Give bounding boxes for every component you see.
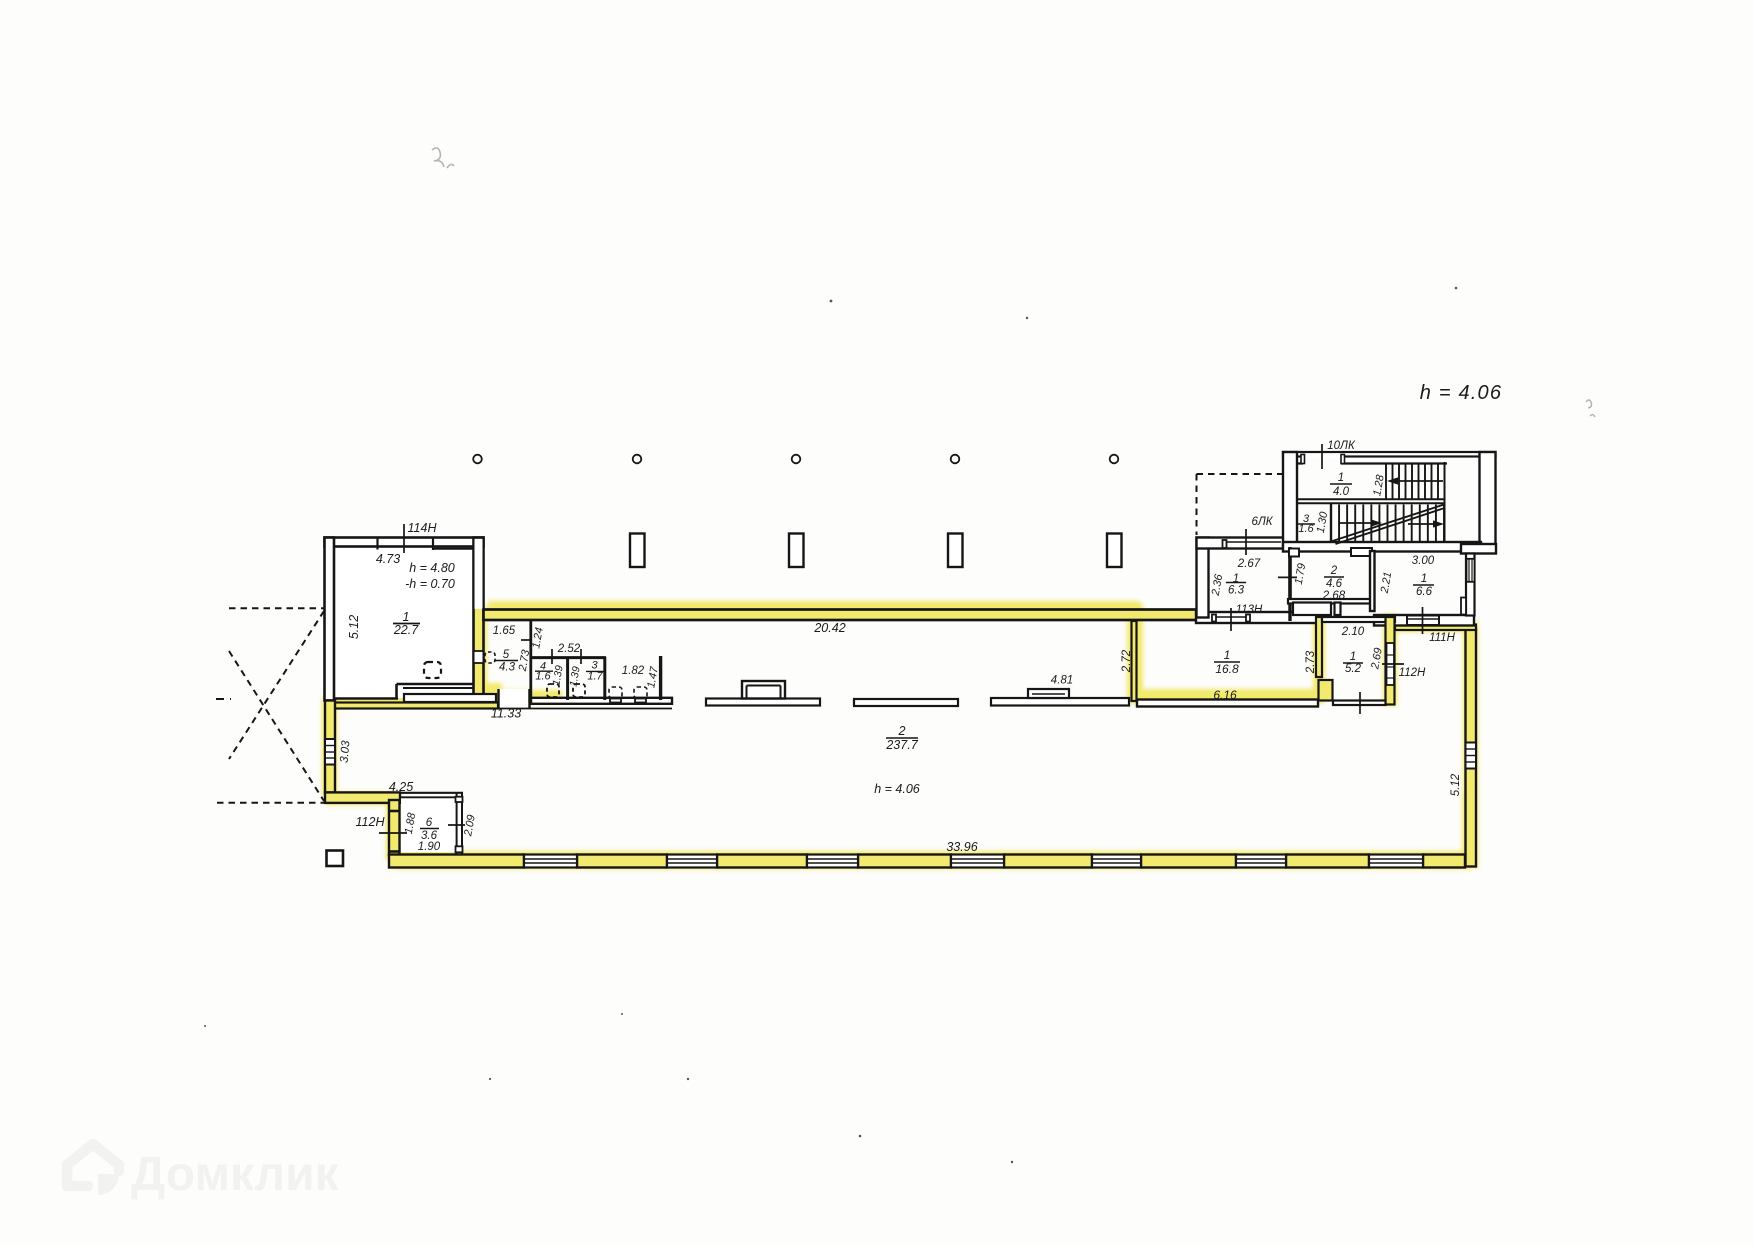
svg-text:114H: 114H <box>408 521 438 535</box>
svg-text:h = 4.06: h = 4.06 <box>1420 382 1502 404</box>
svg-text:1.6: 1.6 <box>535 671 551 683</box>
svg-text:4.73: 4.73 <box>376 552 400 566</box>
svg-text:6.16: 6.16 <box>1213 688 1237 702</box>
svg-text:1: 1 <box>1224 648 1231 662</box>
svg-text:3.03: 3.03 <box>339 739 353 763</box>
svg-text:-h = 0.70: -h = 0.70 <box>405 577 455 591</box>
svg-text:6ЛК: 6ЛК <box>1251 516 1273 528</box>
svg-text:6.6: 6.6 <box>1416 586 1433 598</box>
svg-text:6: 6 <box>426 817 433 829</box>
svg-text:2.73: 2.73 <box>1305 650 1317 674</box>
svg-text:1.6: 1.6 <box>1298 523 1314 535</box>
svg-text:5.12: 5.12 <box>1450 773 1462 796</box>
svg-text:10ЛК: 10ЛК <box>1327 440 1356 452</box>
svg-text:113H: 113H <box>1236 604 1263 616</box>
svg-text:6.3: 6.3 <box>1228 585 1245 597</box>
svg-text:2.52: 2.52 <box>557 643 581 655</box>
svg-text:4.25: 4.25 <box>389 780 413 794</box>
svg-text:4.0: 4.0 <box>1333 486 1350 498</box>
svg-text:1.65: 1.65 <box>493 625 516 637</box>
svg-text:2: 2 <box>898 724 906 738</box>
svg-text:1: 1 <box>1338 472 1344 484</box>
svg-text:2.72: 2.72 <box>1121 649 1133 673</box>
svg-text:33.96: 33.96 <box>946 840 977 854</box>
svg-text:4.81: 4.81 <box>1051 675 1073 687</box>
svg-text:5: 5 <box>503 649 510 661</box>
svg-text:1.7: 1.7 <box>587 671 603 683</box>
svg-text:1.82: 1.82 <box>622 665 645 677</box>
svg-text:11.33: 11.33 <box>491 707 521 721</box>
svg-text:5.12: 5.12 <box>347 615 361 639</box>
svg-text:2.10: 2.10 <box>1341 626 1365 638</box>
svg-text:2.67: 2.67 <box>1237 558 1261 570</box>
svg-text:1: 1 <box>1421 573 1427 585</box>
svg-text:2.68: 2.68 <box>1322 590 1346 602</box>
svg-text:20.42: 20.42 <box>813 621 845 635</box>
svg-text:Домклик: Домклик <box>131 1148 340 1201</box>
svg-text:4.3: 4.3 <box>499 662 516 674</box>
svg-text:1.90: 1.90 <box>418 841 441 853</box>
svg-text:h = 4.06: h = 4.06 <box>874 782 920 796</box>
svg-text:1: 1 <box>1350 651 1356 663</box>
svg-text:111H: 111H <box>1429 632 1455 644</box>
svg-text:237.7: 237.7 <box>885 738 918 752</box>
svg-text:5.2: 5.2 <box>1345 663 1362 675</box>
svg-text:3.00: 3.00 <box>1412 555 1435 567</box>
svg-text:112H: 112H <box>1399 667 1426 679</box>
svg-text:112H: 112H <box>356 815 386 829</box>
svg-text:4.6: 4.6 <box>1326 578 1343 590</box>
svg-text:1: 1 <box>403 610 410 624</box>
svg-text:2: 2 <box>1330 565 1338 577</box>
svg-text:22.7: 22.7 <box>393 623 419 637</box>
svg-text:16.8: 16.8 <box>1215 662 1239 676</box>
svg-text:h = 4.80: h = 4.80 <box>409 561 455 575</box>
